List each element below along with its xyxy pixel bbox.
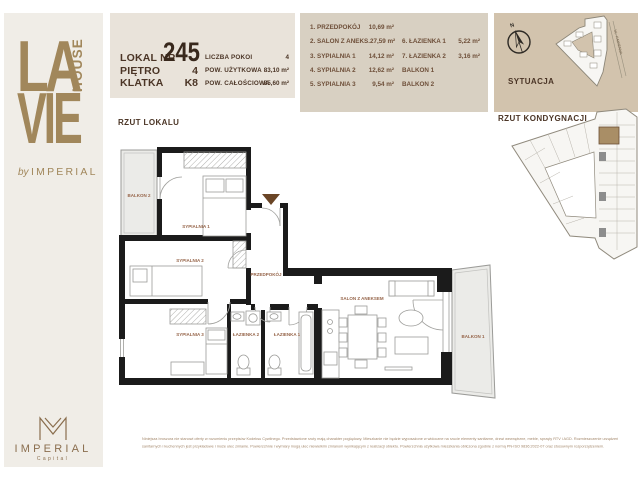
room-label: BALKON 2	[127, 193, 150, 198]
sofa	[395, 337, 428, 354]
developer-sub: Capital	[37, 456, 69, 462]
room-list-item: 1. PRZEDPOKÓJ10,69 m²	[310, 24, 394, 38]
logo-word-house: HOUSE	[70, 38, 85, 92]
room-label: ŁAZIENKA 2	[233, 332, 260, 337]
developer-name: IMPERIAL	[15, 443, 92, 455]
rooms-count-value: 4	[250, 54, 289, 61]
door-swings	[160, 177, 443, 330]
wardrobe	[170, 309, 206, 324]
desk	[171, 362, 204, 375]
compass-north-label: N	[509, 22, 515, 29]
disclaimer: Niniejsza broszura nie stanowi oferty w …	[142, 435, 640, 459]
staircase-value: K8	[163, 77, 198, 89]
situation-block: N UL. KAMIENNA SYTUACJA	[494, 13, 638, 112]
street-label: UL. KAMIENNA	[613, 29, 623, 55]
room-list-item: 4. SYPIALNIA 212,62 m²	[310, 67, 394, 81]
wardrobe	[233, 241, 246, 268]
room-list-item: BALKON 1	[402, 67, 480, 81]
lokal-number: 245	[163, 39, 200, 66]
rooms-count-label: LICZBA POKOI	[205, 54, 252, 61]
room-label: SYPIALNIA 1	[182, 224, 210, 229]
staircase-label: KLATKA	[120, 77, 164, 89]
compass-icon: N	[508, 22, 530, 53]
room-label: BALKON 1	[461, 334, 484, 339]
room-label: SALON Z ANEKSEM	[340, 296, 384, 301]
total-area-value: 85,60 m²	[250, 80, 289, 87]
left-brand-panel: LA VIE HOUSE by IMPERIAL IMPERIAL Capita…	[4, 13, 103, 467]
room-list-item: 7. ŁAZIENKA 23,16 m²	[402, 53, 480, 67]
room-label: PRZEDPOKÓJ	[250, 270, 282, 277]
kitchen-sink	[324, 352, 337, 365]
room-label: ŁAZIENKA 1	[274, 332, 301, 337]
wardrobe	[184, 152, 246, 168]
dining-table	[348, 315, 377, 359]
balcony-1	[452, 265, 495, 398]
unit-floor-plan: BALKON 2 SYPIALNIA 1 SYPIALNIA 2 SYPIALN…	[112, 130, 504, 410]
brochure-page: LA VIE HOUSE by IMPERIAL IMPERIAL Capita…	[0, 0, 640, 480]
storey-plan	[495, 105, 640, 270]
situation-title: SYTUACJA	[508, 77, 554, 86]
imperial-monogram-icon	[40, 418, 66, 440]
tv-stand	[385, 367, 412, 370]
imperial-capital-logo: IMPERIAL Capital	[4, 398, 103, 464]
site-footprint: UL. KAMIENNA	[556, 16, 626, 86]
room-list-item: 6. ŁAZIENKA 15,22 m²	[402, 38, 480, 52]
floor-value: 4	[163, 65, 198, 77]
unit-header-block: LOKAL NR 245 PIĘTRO 4 KLATKA K8 LICZBA P…	[110, 13, 295, 98]
furniture	[130, 152, 434, 378]
room-list-item: BALKON 2	[402, 81, 480, 95]
logo-by: by	[18, 167, 30, 178]
room-list-item: 2. SALON Z ANEKS.27,59 m²	[310, 38, 394, 52]
situation-map: N UL. KAMIENNA	[494, 13, 638, 112]
usable-area-value: 83,10 m²	[250, 67, 289, 74]
room-label: SYPIALNIA 3	[176, 332, 204, 337]
highlighted-unit-245	[599, 127, 619, 144]
disclaimer-line1: Niniejsza broszura nie stanowi oferty w …	[142, 435, 640, 443]
room-label: SYPIALNIA 2	[176, 258, 204, 263]
sofa	[389, 281, 434, 296]
room-list-col2: 6. ŁAZIENKA 15,22 m² 7. ŁAZIENKA 23,16 m…	[402, 38, 480, 95]
coffee-table	[399, 310, 423, 326]
room-list-col1: 1. PRZEDPOKÓJ10,69 m² 2. SALON Z ANEKS.2…	[310, 24, 394, 95]
room-list-item: 3. SYPIALNIA 114,12 m²	[310, 53, 394, 67]
room-list-block: 1. PRZEDPOKÓJ10,69 m² 2. SALON Z ANEKS.2…	[300, 13, 488, 112]
floor-label: PIĘTRO	[120, 65, 160, 77]
disclaimer-line2: sanitarnych i kuchennych jest przykładow…	[142, 443, 640, 451]
entrance-arrow-icon	[262, 194, 280, 205]
unit-plan-title: RZUT LOKALU	[118, 118, 179, 127]
logo-imperial: IMPERIAL	[31, 166, 98, 178]
room-list-item: 5. SYPIALNIA 39,54 m²	[310, 81, 394, 95]
